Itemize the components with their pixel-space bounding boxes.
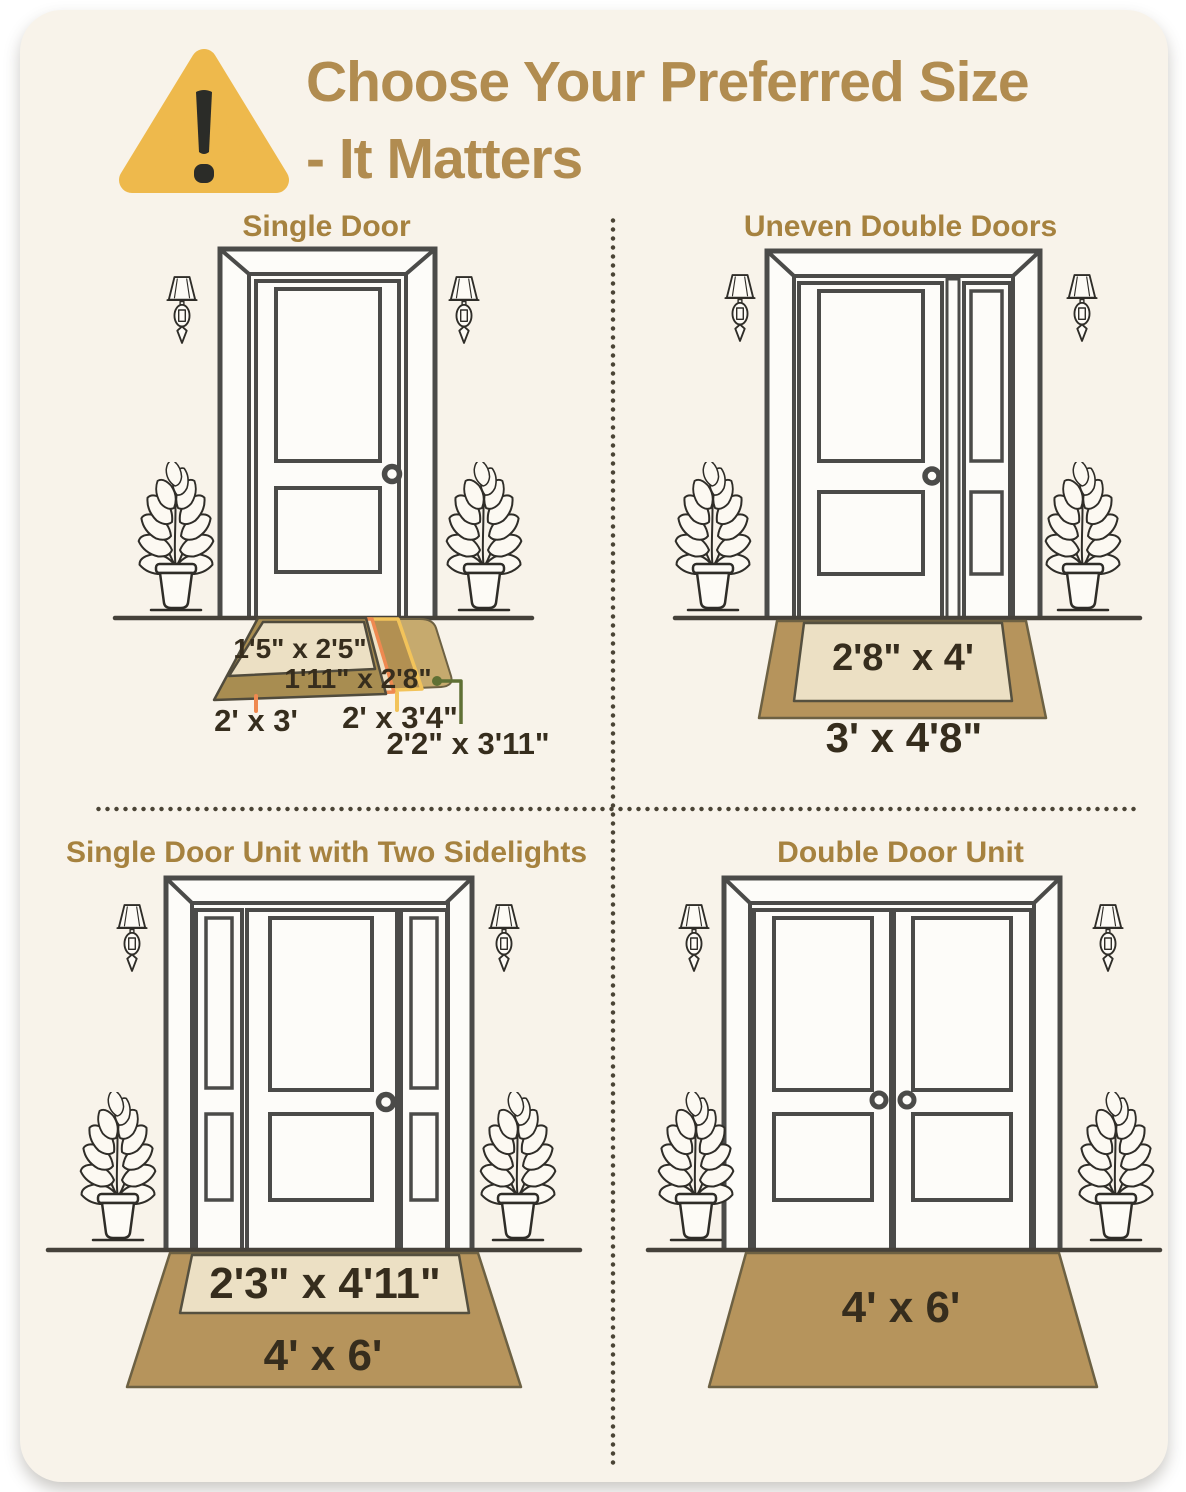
single-door bbox=[220, 249, 435, 618]
plant-icon-left bbox=[137, 459, 214, 610]
page-background: Choose Your Preferred Size - It Matters … bbox=[0, 0, 1186, 1492]
left-door-knob-icon bbox=[872, 1093, 886, 1107]
left-door-upper-panel bbox=[774, 918, 872, 1090]
door-knob-icon bbox=[379, 1095, 394, 1110]
warning-triangle-icon bbox=[118, 46, 290, 202]
left-sidelight-lower-panel bbox=[206, 1114, 232, 1200]
info-card: Choose Your Preferred Size - It Matters … bbox=[20, 10, 1168, 1482]
horizontal-dotted-divider bbox=[94, 806, 1136, 812]
uneven-double-door bbox=[767, 251, 1040, 618]
right-door-lower-panel bbox=[913, 1114, 1011, 1200]
door-knob-icon bbox=[925, 469, 939, 483]
page-title-line2: - It Matters bbox=[306, 121, 1176, 198]
sconce-icon-right bbox=[1067, 275, 1096, 341]
door-upper-panel bbox=[270, 918, 372, 1090]
mat-size-label: 1'11" x 2'8" bbox=[284, 663, 431, 694]
page-title: Choose Your Preferred Size - It Matters bbox=[306, 44, 1176, 198]
door-lower-panel bbox=[270, 1114, 372, 1200]
plant-icon-right bbox=[1077, 1089, 1154, 1240]
door-lower-panel bbox=[819, 492, 923, 574]
plant-icon-right bbox=[445, 459, 522, 610]
single-door-two-sidelights-illustration: 2'3" x 4'11" 4' x 6' bbox=[40, 820, 613, 1492]
sconce-icon-left bbox=[167, 277, 196, 343]
single-door-illustration: 1'5" x 2'5" 1'11" x 2'8" 2' x 3' 2' x 3'… bbox=[40, 215, 613, 805]
right-sidelight-upper-panel bbox=[411, 918, 437, 1088]
right-sidelight-lower-panel bbox=[411, 1114, 437, 1200]
door-knob-icon bbox=[385, 467, 400, 482]
sconce-icon-right bbox=[1093, 905, 1122, 971]
mat-size-label: 2'8" x 4' bbox=[832, 637, 974, 679]
sconce-icon-left bbox=[117, 905, 146, 971]
sidelight-upper-panel bbox=[971, 291, 1002, 461]
door-upper-panel bbox=[819, 291, 923, 461]
double-door bbox=[724, 878, 1060, 1250]
left-door-lower-panel bbox=[774, 1114, 872, 1200]
door-lower-panel bbox=[276, 488, 380, 572]
right-door-upper-panel bbox=[913, 918, 1011, 1090]
sconce-icon-right bbox=[449, 277, 478, 343]
plant-icon-left bbox=[79, 1089, 156, 1240]
mat-size-label: 1'5" x 2'5" bbox=[233, 633, 366, 664]
mat-size-label: 4' x 6' bbox=[264, 1331, 383, 1380]
sconce-icon-right bbox=[489, 905, 518, 971]
page-title-line1: Choose Your Preferred Size bbox=[306, 44, 1176, 121]
mat-size-label: 3' x 4'8" bbox=[826, 714, 983, 761]
mullion bbox=[947, 279, 959, 618]
mat-size-label: 4' x 6' bbox=[842, 1283, 961, 1332]
sconce-icon-left bbox=[725, 275, 754, 341]
mat-size-label: 2'3" x 4'11" bbox=[209, 1259, 441, 1308]
plant-icon-right bbox=[1044, 459, 1121, 610]
sidelight-lower-panel bbox=[971, 492, 1002, 574]
mat-size-label: 2' x 3' bbox=[214, 703, 298, 738]
plant-icon-left bbox=[674, 459, 751, 610]
door-upper-panel bbox=[276, 289, 380, 461]
plant-icon-right bbox=[479, 1089, 556, 1240]
uneven-double-doors-illustration: 2'8" x 4' 3' x 4'8" bbox=[613, 215, 1186, 805]
mat-size-label: 2'2" x 3'11" bbox=[386, 726, 549, 761]
left-sidelight-upper-panel bbox=[206, 918, 232, 1088]
door-unit bbox=[166, 878, 472, 1250]
leader-dot-olive bbox=[432, 676, 442, 686]
sconce-icon-left bbox=[679, 905, 708, 971]
double-door-unit-illustration: 4' x 6' bbox=[613, 820, 1186, 1492]
right-door-knob-icon bbox=[900, 1093, 914, 1107]
